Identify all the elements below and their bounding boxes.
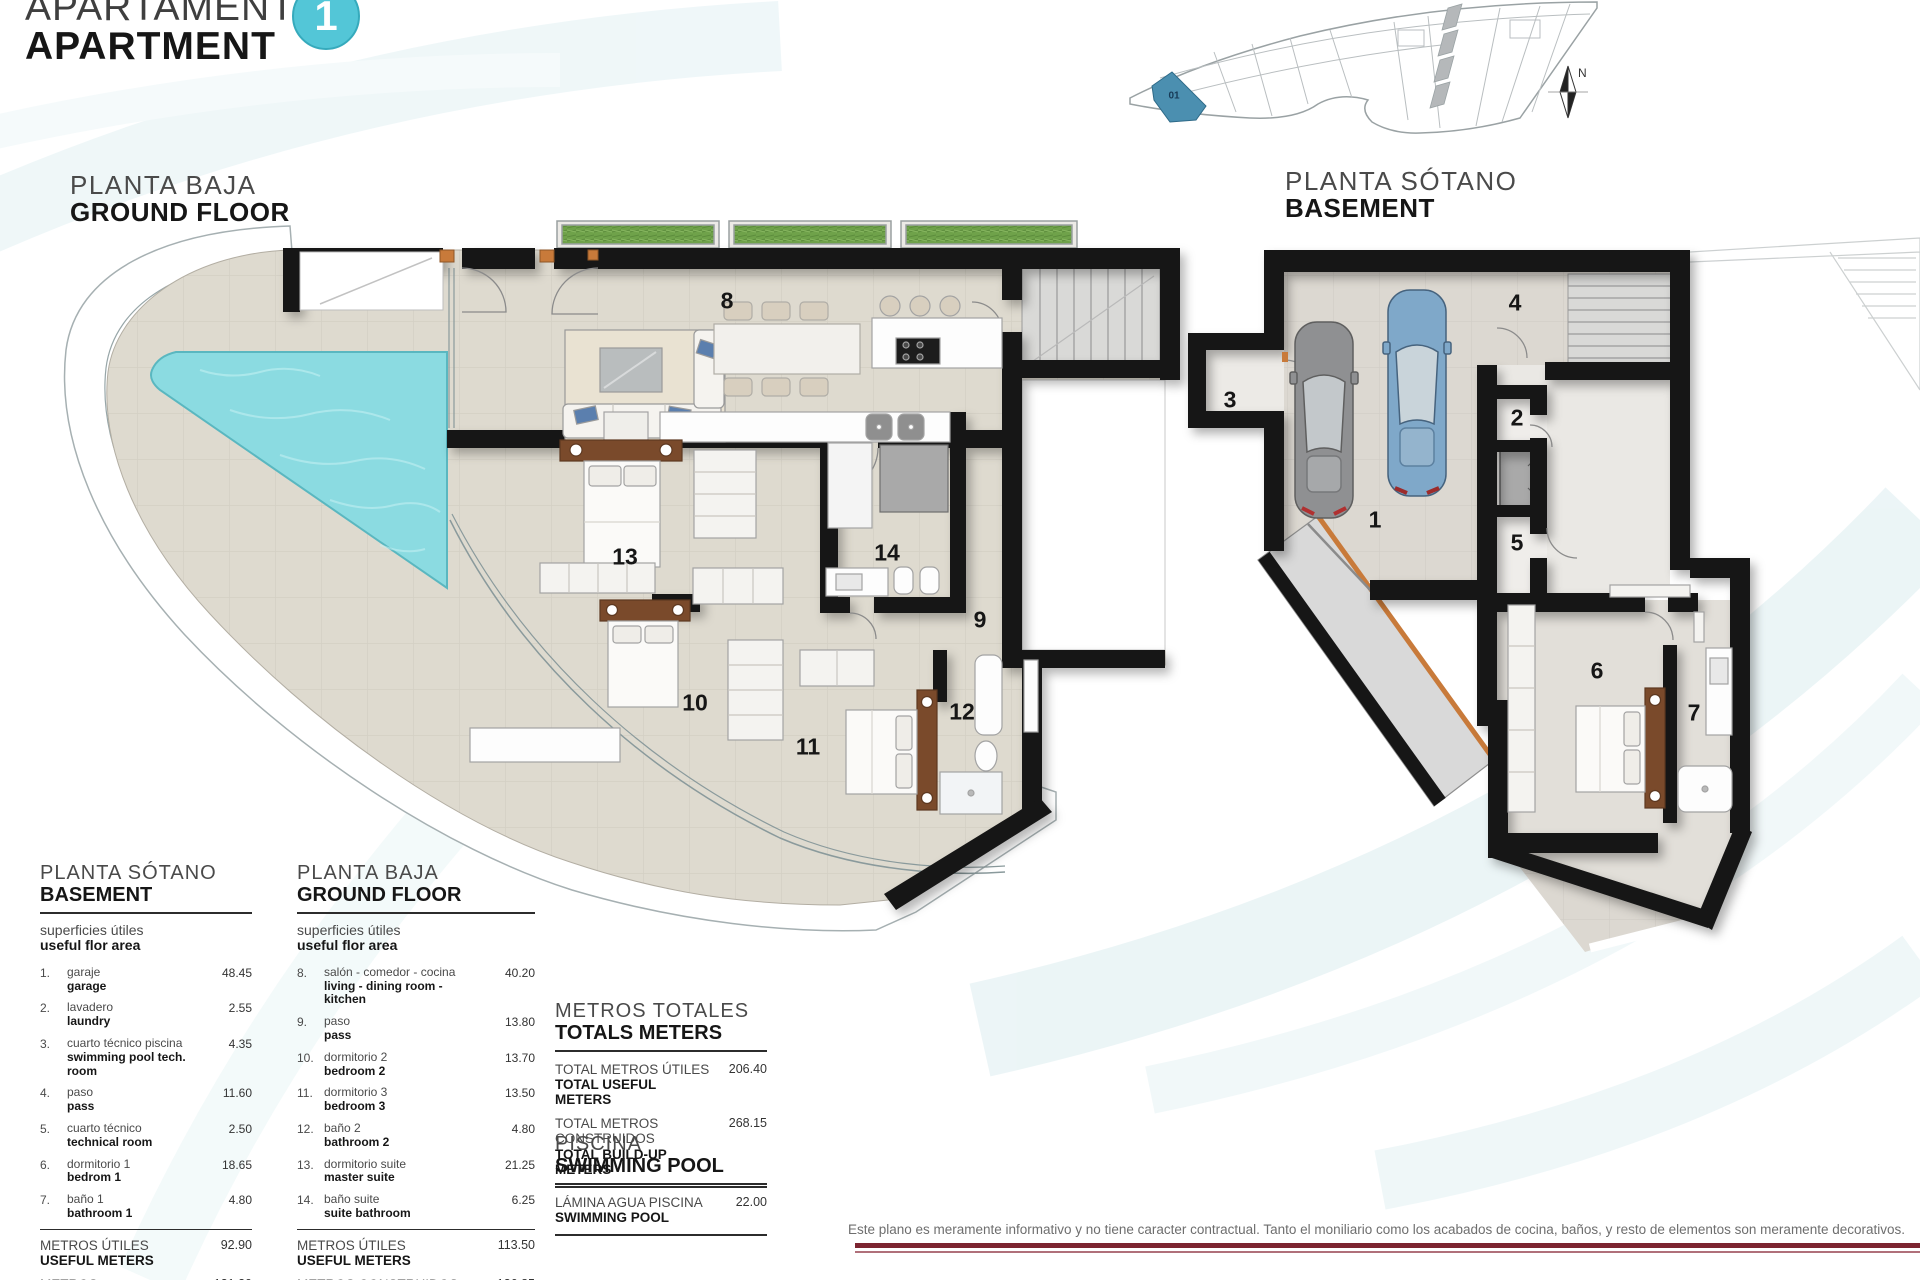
- legend-row: 5.cuarto técnicotechnical room2.50: [40, 1122, 252, 1150]
- basement-room-number-3: 3: [1224, 387, 1237, 414]
- totals-table-title-es: METROS TOTALES: [555, 1000, 767, 1022]
- totals-row: TOTAL METROS ÚTILESTOTAL USEFUL METERS20…: [555, 1062, 767, 1107]
- row-label-en: TOTAL USEFUL METERS: [555, 1077, 711, 1107]
- row-label-en: living - dining room - kitchen: [324, 980, 483, 1008]
- row-number: 6.: [40, 1158, 67, 1172]
- row-value: 18.65: [200, 1158, 252, 1172]
- row-label-es: baño 1: [67, 1193, 200, 1207]
- site-unit-label: 01: [1168, 91, 1179, 102]
- row-label-es: lavadero: [67, 1001, 200, 1015]
- row-value: 206.40: [711, 1062, 767, 1076]
- row-value: 11.60: [200, 1086, 252, 1100]
- legend-row: 6.dormitorio 1bedrom 118.65: [40, 1158, 252, 1186]
- totals-row: METROS ÚTILESUSEFUL METERS113.50: [297, 1238, 535, 1268]
- ground-room-number-10: 10: [682, 690, 708, 717]
- ground-room-number-14: 14: [874, 540, 900, 567]
- ground-table-title-es: PLANTA BAJA: [297, 862, 535, 884]
- ground-floor-heading-es: PLANTA BAJA: [70, 172, 290, 199]
- row-number: 11.: [297, 1086, 324, 1100]
- row-label-es: cuarto técnico: [67, 1122, 200, 1136]
- legend-row: 14.baño suitesuite bathroom6.25: [297, 1193, 535, 1221]
- basement-heading: PLANTA SÓTANO BASEMENT: [1285, 168, 1517, 223]
- page-title: APARTAMENTO APARTMENT: [25, 0, 326, 66]
- ground-table-totals: METROS ÚTILESUSEFUL METERS113.50METROS C…: [297, 1229, 535, 1280]
- legend-row: 3.cuarto técnico piscinaswimming pool te…: [40, 1037, 252, 1078]
- basement-room-number-5: 5: [1511, 530, 1524, 557]
- planters: [557, 221, 1077, 248]
- row-label-en: suite bathroom: [324, 1207, 483, 1221]
- brochure-page: APARTAMENTO APARTMENT 1 PLANTA BAJA GROU…: [0, 0, 1920, 1280]
- row-label-es: METROS ÚTILES: [40, 1238, 196, 1253]
- row-label-en: bathroom 2: [324, 1136, 483, 1150]
- legend-row: 13.dormitorio suitemaster suite21.25: [297, 1158, 535, 1186]
- basement-table-subtitle-es: superficies útiles: [40, 923, 252, 938]
- row-label-en: pass: [67, 1100, 200, 1114]
- row-number: 9.: [297, 1015, 324, 1029]
- row-label-es: paso: [324, 1015, 483, 1029]
- basement-heading-es: PLANTA SÓTANO: [1285, 168, 1517, 195]
- basement-table-subtitle-en: useful flor area: [40, 938, 252, 953]
- ground-floor-plan: [65, 221, 1180, 931]
- basement-table-title-en: BASEMENT: [40, 884, 252, 906]
- pool-table-title-es: PISCINA: [555, 1133, 767, 1155]
- row-number: 4.: [40, 1086, 67, 1100]
- row-number: 2.: [40, 1001, 67, 1015]
- ground-floor-heading: PLANTA BAJA GROUND FLOOR: [70, 172, 290, 227]
- unit-number: 1: [314, 0, 337, 40]
- row-label-es: baño suite: [324, 1193, 483, 1207]
- site-plan-map: [1130, 2, 1597, 133]
- row-label-en: bedroom 3: [324, 1100, 483, 1114]
- row-label-en: USEFUL METERS: [40, 1253, 196, 1268]
- ground-room-number-9: 9: [974, 607, 987, 634]
- row-value: 4.80: [483, 1122, 535, 1136]
- ground-legend-table: PLANTA BAJA GROUND FLOOR superficies úti…: [297, 862, 535, 1280]
- basement-room-number-1: 1: [1369, 507, 1382, 534]
- legend-row: 1.garajegarage48.45: [40, 966, 252, 994]
- totals-table-title-en: TOTALS METERS: [555, 1022, 767, 1044]
- row-value: 6.25: [483, 1193, 535, 1207]
- row-value: 13.70: [483, 1051, 535, 1065]
- basement-room-number-2: 2: [1511, 405, 1524, 432]
- row-label-en: technical room: [67, 1136, 200, 1150]
- row-value: 21.25: [483, 1158, 535, 1172]
- ground-table-subtitle-en: useful flor area: [297, 938, 535, 953]
- basement-table-rows: 1.garajegarage48.452.lavaderolaundry2.55…: [40, 966, 252, 1221]
- legend-row: 9.pasopass13.80: [297, 1015, 535, 1043]
- pool-table-title-en: SWIMMING POOL: [555, 1155, 767, 1177]
- basement-plan: [1188, 238, 1920, 952]
- legend-row: 2.lavaderolaundry2.55: [40, 1001, 252, 1029]
- ground-room-number-8: 8: [721, 288, 734, 315]
- row-label-es: paso: [67, 1086, 200, 1100]
- north-label: N: [1578, 66, 1587, 80]
- basement-room-number-4: 4: [1509, 290, 1522, 317]
- ground-room-number-13: 13: [612, 544, 638, 571]
- row-label-en: laundry: [67, 1015, 200, 1029]
- legend-row: 12.baño 2bathroom 24.80: [297, 1122, 535, 1150]
- basement-table-title-es: PLANTA SÓTANO: [40, 862, 252, 884]
- row-label-es: dormitorio 1: [67, 1158, 200, 1172]
- row-label-es: salón - comedor - cocina: [324, 966, 483, 980]
- row-number: 7.: [40, 1193, 67, 1207]
- row-value: 4.35: [200, 1037, 252, 1051]
- row-number: 3.: [40, 1037, 67, 1051]
- row-label-en: swimming pool tech. room: [67, 1051, 200, 1079]
- row-value: 13.50: [483, 1086, 535, 1100]
- pool-table: PISCINA SWIMMING POOL LÁMINA AGUA PISCIN…: [555, 1133, 767, 1236]
- legend-row: 10.dormitorio 2bedroom 213.70: [297, 1051, 535, 1079]
- ground-room-number-12: 12: [949, 699, 975, 726]
- basement-room-number-7: 7: [1688, 700, 1701, 727]
- row-value: 268.15: [711, 1116, 767, 1130]
- row-number: 5.: [40, 1122, 67, 1136]
- disclaimer-text: Este plano es meramente informativo y no…: [705, 1222, 1905, 1237]
- row-label-en: bathroom 1: [67, 1207, 200, 1221]
- row-label-en: garage: [67, 980, 200, 994]
- basement-legend-table: PLANTA SÓTANO BASEMENT superficies útile…: [40, 862, 252, 1280]
- row-label-es: TOTAL METROS ÚTILES: [555, 1062, 711, 1077]
- legend-row: 4.pasopass11.60: [40, 1086, 252, 1114]
- row-label-es: METROS ÚTILES: [297, 1238, 479, 1253]
- row-label-es: LÁMINA AGUA PISCINA: [555, 1195, 711, 1210]
- row-value: 2.50: [200, 1122, 252, 1136]
- row-value: 2.55: [200, 1001, 252, 1015]
- row-number: 12.: [297, 1122, 324, 1136]
- row-label-en: SWIMMING POOL: [555, 1210, 711, 1225]
- legend-row: 7.baño 1bathroom 14.80: [40, 1193, 252, 1221]
- row-number: 1.: [40, 966, 67, 980]
- row-label-es: cuarto técnico piscina: [67, 1037, 200, 1051]
- footer-rule-light: [855, 1251, 1920, 1253]
- basement-heading-en: BASEMENT: [1285, 195, 1517, 222]
- ground-table-title-en: GROUND FLOOR: [297, 884, 535, 906]
- row-value: 22.00: [711, 1195, 767, 1209]
- ground-table-subtitle-es: superficies útiles: [297, 923, 535, 938]
- page-title-en: APARTMENT: [25, 27, 326, 66]
- row-number: 10.: [297, 1051, 324, 1065]
- legend-row: 11.dormitorio 3bedroom 313.50: [297, 1086, 535, 1114]
- car-grey: [1290, 322, 1358, 518]
- row-label-en: pass: [324, 1029, 483, 1043]
- totals-row: LÁMINA AGUA PISCINASWIMMING POOL22.00: [555, 1195, 767, 1225]
- footer-rule-dark: [855, 1243, 1920, 1248]
- row-value: 113.50: [479, 1238, 535, 1252]
- row-number: 14.: [297, 1193, 324, 1207]
- row-label-es: dormitorio 3: [324, 1086, 483, 1100]
- row-value: 13.80: [483, 1015, 535, 1029]
- row-label-es: dormitorio 2: [324, 1051, 483, 1065]
- ground-table-rows: 8.salón - comedor - cocinaliving - dinin…: [297, 966, 535, 1221]
- basement-table-totals: METROS ÚTILESUSEFUL METERS92.90METROS CO…: [40, 1229, 252, 1280]
- pool-table-rows: LÁMINA AGUA PISCINASWIMMING POOL22.00: [555, 1195, 767, 1225]
- ground-room-number-11: 11: [796, 734, 820, 761]
- legend-row: 8.salón - comedor - cocinaliving - dinin…: [297, 966, 535, 1007]
- page-title-es: APARTAMENTO: [25, 0, 326, 27]
- row-label-es: garaje: [67, 966, 200, 980]
- ground-floor-heading-en: GROUND FLOOR: [70, 199, 290, 226]
- row-value: 40.20: [483, 966, 535, 980]
- row-value: 92.90: [196, 1238, 252, 1252]
- row-value: 48.45: [200, 966, 252, 980]
- basement-room-number-6: 6: [1591, 658, 1604, 685]
- car-blue: [1383, 290, 1451, 496]
- row-label-en: bedrom 1: [67, 1171, 200, 1185]
- row-label-en: bedroom 2: [324, 1065, 483, 1079]
- row-label-en: master suite: [324, 1171, 483, 1185]
- row-number: 13.: [297, 1158, 324, 1172]
- row-label-en: USEFUL METERS: [297, 1253, 479, 1268]
- totals-row: METROS ÚTILESUSEFUL METERS92.90: [40, 1238, 252, 1268]
- row-number: 8.: [297, 966, 324, 980]
- row-label-es: dormitorio suite: [324, 1158, 483, 1172]
- row-value: 4.80: [200, 1193, 252, 1207]
- row-label-es: baño 2: [324, 1122, 483, 1136]
